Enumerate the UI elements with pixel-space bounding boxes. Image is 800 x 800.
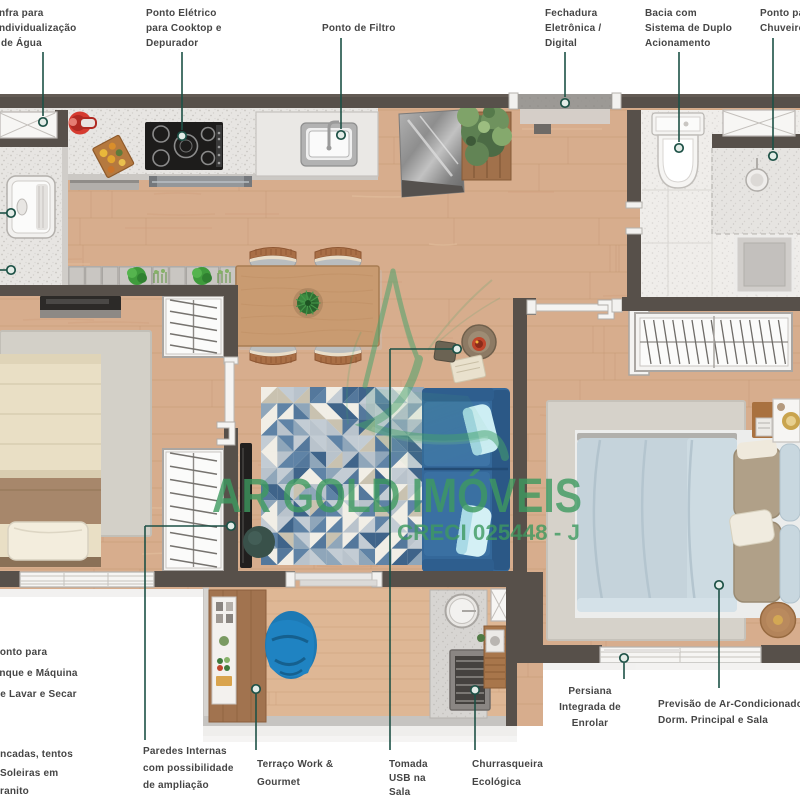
svg-text:Tanque e Máquina: Tanque e Máquina [0, 668, 78, 679]
svg-text:Gourmet: Gourmet [257, 777, 301, 788]
svg-text:Digital: Digital [545, 38, 577, 49]
svg-text:Churrasqueira: Churrasqueira [472, 759, 543, 770]
svg-text:Individualização: Individualização [0, 23, 76, 34]
svg-text:Depurador: Depurador [146, 38, 198, 49]
svg-text:Bacia com: Bacia com [645, 8, 697, 19]
svg-text:USB na: USB na [389, 773, 426, 784]
svg-text:de ampliação: de ampliação [143, 780, 209, 791]
svg-text:Ponto Elétrico: Ponto Elétrico [146, 8, 217, 19]
svg-text:com possibilidade: com possibilidade [143, 763, 234, 774]
svg-text:de Lavar e Secar: de Lavar e Secar [0, 689, 77, 700]
svg-text:Eletrônica /: Eletrônica / [545, 23, 601, 34]
svg-text:Tomada: Tomada [389, 759, 428, 770]
svg-text:Fechadura: Fechadura [545, 8, 598, 19]
svg-text:Granito: Granito [0, 786, 29, 797]
svg-text:de Água: de Água [1, 36, 42, 49]
svg-text:CRECI 025448 - J: CRECI 025448 - J [397, 520, 580, 545]
svg-text:Ecológica: Ecológica [472, 777, 521, 788]
svg-text:Previsão de Ar-Condicionado: Previsão de Ar-Condicionado [658, 699, 800, 710]
svg-text:Sala: Sala [389, 787, 411, 798]
svg-text:Integrada de: Integrada de [559, 702, 621, 713]
svg-text:Sistema de Duplo: Sistema de Duplo [645, 23, 732, 34]
svg-text:para Cooktop e: para Cooktop e [146, 23, 222, 34]
svg-text:Chuveiro Sup: Chuveiro Sup [760, 23, 800, 34]
svg-text:Dorm. Principal e Sala: Dorm. Principal e Sala [658, 715, 768, 726]
svg-text:Acionamento: Acionamento [645, 38, 711, 49]
svg-text:Infra para: Infra para [0, 8, 44, 19]
svg-text:Terraço Work &: Terraço Work & [257, 759, 333, 770]
svg-text:Persiana: Persiana [568, 686, 612, 697]
svg-text:Ponto para: Ponto para [760, 8, 800, 19]
svg-text:Paredes Internas: Paredes Internas [143, 746, 227, 757]
svg-text:AR GOLD IMÓVEIS: AR GOLD IMÓVEIS [212, 468, 582, 523]
svg-text:Soleiras em: Soleiras em [0, 768, 58, 779]
svg-text:Ponto de Filtro: Ponto de Filtro [322, 23, 396, 34]
svg-text:Enrolar: Enrolar [572, 718, 608, 729]
svg-text:Ponto para: Ponto para [0, 647, 47, 658]
svg-text:Bancadas, tentos: Bancadas, tentos [0, 749, 73, 760]
